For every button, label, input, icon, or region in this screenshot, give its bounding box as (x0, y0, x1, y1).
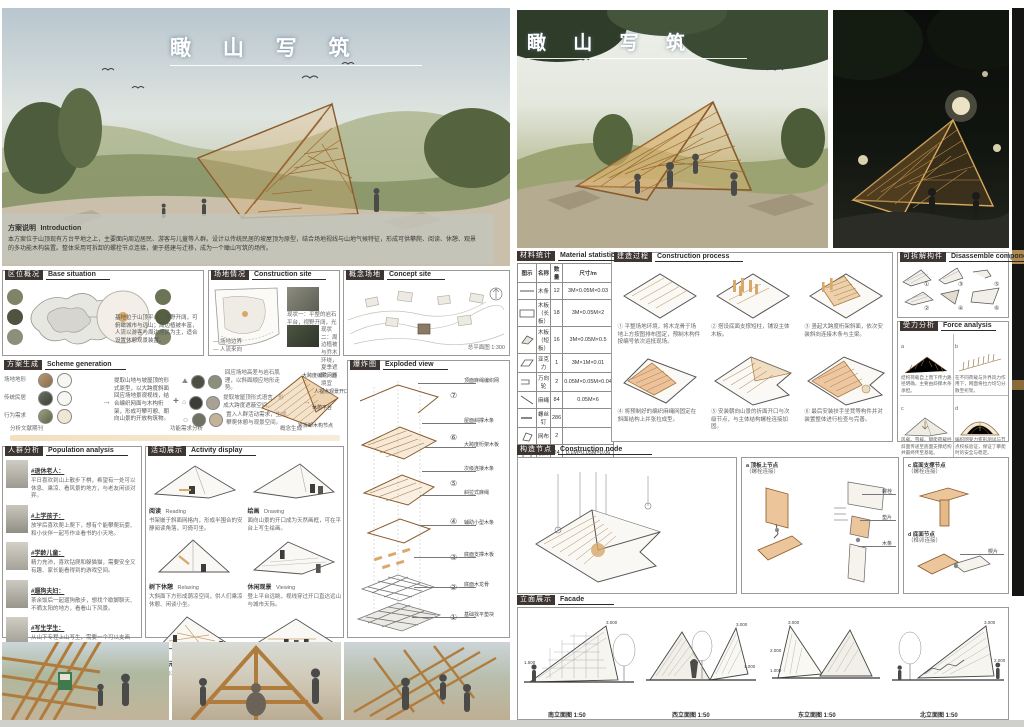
process-caption: ④ 将预制好的编织麻绳网固定在斜面结构上并张拉成型。 (618, 409, 702, 424)
scheme-arrow-1: → (102, 396, 111, 406)
node-detail-cd-box: c 底面支撑节点 （螺栓连接） d 底面节点 （榫卯连接） (903, 457, 1009, 594)
components-badge: 可拆解构件 (900, 252, 946, 262)
scheme-pair-1-b (208, 375, 222, 389)
mat-col-size: 尺寸/m (563, 264, 614, 283)
components-title: Disassemble components (949, 253, 1024, 262)
process-step: ⑥ 最后安装扶手坐凳等构件并对装置整体进行检查与完善。 (803, 351, 890, 432)
node-part-label-2: 垫片 (882, 514, 892, 521)
concept-plan-graphic (346, 284, 508, 348)
process-caption: ③ 竖起大跨度桁架斜面，依次安装斜向连接木条与主梁。 (804, 324, 888, 339)
population-group: #上学孩子： 放学后喜欢爬上爬下，想有个能攀爬玩耍、和小伙伴一起写作业看书的小天… (6, 505, 140, 538)
night-scene-graphic (833, 10, 1009, 248)
node-title: Construction node (558, 446, 652, 455)
exploded-label-3: 大跨度桁架木板 (464, 441, 499, 448)
base-situation-title: Base situation (46, 271, 110, 280)
mat-col-shape: 图示 (518, 264, 537, 283)
activity-note: 面向山景的开口成为天然画框，可在平台上写生绘画。 (248, 518, 343, 533)
elevation-north-graphic: 3.000 2.000 (890, 612, 1006, 700)
material-row: 木条123M×0.05M×0.03 (518, 283, 614, 300)
persona-desc: 平日喜欢到山上散步下棋，希望有一处可以休息、乘凉、看风景的地方，与老友闲谈对弈。 (31, 478, 137, 501)
process-caption: ⑥ 最后安装扶手坐凳等构件并对装置整体进行检查与完善。 (804, 409, 888, 424)
process-step: ① 平整场地环境，将木龙骨于场地上方按图排布固定，预制木构件按编号依次运抵现场。 (616, 266, 703, 347)
svg-text:1.000: 1.000 (770, 668, 782, 673)
material-badge: 材料统计 (517, 251, 555, 261)
scheme-input-1: 场地地形 (4, 377, 34, 385)
svg-text:3.000: 3.000 (736, 622, 748, 627)
scheme-plus: + (173, 396, 179, 407)
mat-col-name: 名称 (537, 264, 551, 283)
node-part-label-5: 楔片 (988, 548, 998, 555)
force-cell-b: b 在不同荷载与外界风力作用下，网面将拉力均匀分散至桁架。 (954, 334, 1008, 396)
construction-process-box: 建造过程 Construction process ① 平整场地环境，将木龙骨于… (611, 252, 893, 442)
exploded-num-7: ⑦ (450, 391, 457, 400)
construction-site-box: 场地情况 Construction site — 场地边界 — 人流来向 现状一… (208, 270, 340, 356)
component-num-3: ③ (958, 281, 963, 288)
material-row: 木板（短板）163M×0.05M×0.5 (518, 327, 614, 354)
force-tag: b (955, 344, 958, 350)
scheme-generation-section: 方案生成 Scheme generation 场地地形 传统民居 行为需求 (2, 360, 343, 446)
exploded-badge: 爆炸图 (350, 360, 380, 370)
site-legend-1: — 场地边界 (213, 339, 242, 347)
force-caption: 结构荷载自上而下传力路径明确，主要由斜撑木条承担。 (901, 375, 952, 394)
node-detail-d-sub: （榫卯连接） (908, 538, 941, 546)
activity-zh: 绘画 (248, 509, 260, 515)
scheme-input-3: 行为需求 (4, 413, 34, 421)
node-detail-c-tag: c 底面支撑节点 (908, 461, 946, 469)
force-tag: d (955, 406, 958, 412)
scheme-pair-2-a (189, 396, 203, 410)
force-tag: c (901, 406, 904, 412)
material-statistics-box: 材料统计 Material statistics 图示 名称 数量 尺寸/m 木… (517, 252, 607, 442)
board-left: 瞰 山 写 筑 方案说明 Introduction 本方案位于山顶现有方台平地之… (2, 8, 510, 720)
svg-text:2.000: 2.000 (770, 648, 782, 653)
poster-title-right: 瞰 山 写 筑 (527, 28, 747, 55)
exploded-label-5: 斜拉式麻绳 (464, 489, 489, 496)
activity-zh: 休闲观景 (248, 585, 272, 591)
activity-display-box: 活动展示 Activity display 阅读 Reading 书架嵌于斜面网… (145, 446, 344, 638)
material-table: 图示 名称 数量 尺寸/m 木条123M×0.05M×0.03 木板（长板）18… (517, 263, 614, 462)
material-row: 网布2 (518, 428, 614, 445)
base-situation-note: 基地位于山顶平台，视野开阔，可俯瞰城市与远山；周边植被丰富，人流以游客与周边居民… (115, 315, 199, 346)
node-key-axon (528, 466, 668, 588)
svg-text:1.500: 1.500 (524, 660, 536, 665)
persona-name: #上学孩子： (31, 514, 64, 520)
component-num-1: ① (924, 281, 929, 288)
facade-section: 立面展示 Facade 3.000 1.500 南立面图 1:50 (517, 596, 1009, 722)
persona-name: #退休老人： (31, 469, 64, 475)
activity-note: 书架嵌于斜面网格内，形成半围合的安静阅读角落，可倚可坐。 (149, 518, 244, 533)
persona-sketch (6, 580, 28, 608)
component-num-2: ② (924, 305, 929, 312)
force-analysis-box: 受力分析 Force analysis a 结构荷载自上而下传力路径明确，主要由… (897, 321, 1009, 442)
svg-text:3.000: 3.000 (606, 620, 618, 625)
svg-text:1.000: 1.000 (744, 664, 756, 669)
force-cell-a: a 结构荷载自上而下传力路径明确，主要由斜撑木条承担。 (900, 334, 954, 396)
concept-site-badge: 概念场地 (346, 270, 384, 280)
activity-en: Drawing (264, 509, 284, 515)
material-row: 亚克力13M×1M×0.01 (518, 354, 614, 373)
competition-poster: 瞰 山 写 筑 方案说明 Introduction 本方案位于山顶现有方台平地之… (0, 0, 1024, 727)
elevation-west-graphic: 3.000 1.000 (644, 612, 760, 700)
facade-title: Facade (558, 596, 614, 605)
persona-name: #遛狗夫妇： (31, 589, 64, 595)
people-icon: ☺ (182, 417, 189, 424)
node-detail-d-tag: d 底面节点 (908, 530, 941, 538)
node-detail-a-sub: （螺栓连接） (746, 469, 779, 477)
result-label-3: 休憩平台 (312, 404, 332, 411)
board-right: 瞰 山 写 筑 (517, 8, 1009, 722)
persona-sketch (6, 505, 28, 533)
activity-item: 绘画 Drawing 面向山景的开口成为天然画框，可在平台上写生绘画。 (248, 460, 343, 533)
exploded-label-2: 屋面斜撑木条 (464, 417, 494, 424)
roof-icon: ⌂ (182, 399, 186, 406)
concept-site-box: 概念场地 Concept site (343, 270, 510, 356)
activity-note: 登上平台远眺，视线穿过开口直达远山与城市天际。 (248, 594, 343, 609)
exploded-axon-graphic (354, 375, 444, 633)
hero-render-night (833, 10, 1009, 248)
photo-interior-kids (172, 642, 341, 720)
scheme-paragraph: 提取山地与坡屋顶的形式原型，以大跨度斜面回应场地景观视线，结合编织网面与木构桁架… (114, 378, 170, 424)
scheme-input-3-image (38, 409, 53, 424)
node-part-label-4: 木条 (882, 540, 892, 547)
disassemble-components-box: 可拆解构件 Disassemble components ① ③ ⑤ ② ④ ⑥ (897, 252, 1009, 318)
force-tag: a (901, 344, 904, 350)
force-badge: 受力分析 (900, 321, 938, 331)
node-detail-d-graphic (914, 546, 994, 590)
component-num-5: ⑤ (994, 281, 999, 288)
population-group: #遛狗夫妇： 茶余饭后一起遛狗散步，想找个歇脚聊天、不晒太阳的地方，看看山下风景… (6, 580, 140, 613)
node-badge: 构造节点 (517, 445, 555, 455)
page-bottom-strip (0, 720, 1024, 727)
population-group: #学龄儿童： 精力充沛，喜欢钻爬和躲猫猫，需要安全又有趣、家长能看得到的游戏空间… (6, 542, 140, 575)
result-label-4: 可拆卸木构节点 (298, 422, 333, 429)
node-detail-c-sub: （螺栓连接） (908, 469, 946, 477)
construction-site-badge: 场地情况 (211, 270, 249, 280)
process-caption: ① 平整场地环境，将木龙骨于场地上方按图排布固定，预制木构件按编号依次运抵现场。 (618, 324, 702, 347)
activity-title: Activity display (189, 447, 256, 456)
intro-text: 本方案位于山顶现有方台平地之上，主要面向周边居民、游客与儿童等人群。设计以传统民… (8, 236, 478, 253)
elevation-south-graphic: 3.000 1.500 (522, 612, 638, 700)
activity-item: 阅读 Reading 书架嵌于斜面网格内，形成半围合的安静阅读角落，可倚可坐。 (149, 460, 244, 533)
scheme-generation-title: Scheme generation (45, 361, 126, 370)
svg-text:3.000: 3.000 (984, 620, 996, 625)
construction-site-title: Construction site (252, 271, 326, 280)
persona-name: #写生学生： (31, 626, 64, 632)
base-situation-badge: 区位概况 (5, 270, 43, 280)
persona-desc: 茶余饭后一起遛狗散步，想找个歇脚聊天、不晒太阳的地方，看看山下风景。 (31, 598, 137, 613)
process-step: ⑤ 安装朝向山景的折面开口与次级节点，与主体结构螺栓连接加固。 (709, 351, 796, 432)
scheme-input-1-sketch (57, 373, 72, 388)
material-row: 万向轮20.05M×0.05M×0.04 (518, 373, 614, 392)
persona-sketch (6, 460, 28, 488)
exploded-view-box: 爆炸图 Exploded view (347, 360, 510, 638)
facade-badge: 立面展示 (517, 595, 555, 605)
exploded-label-4: 次级连接木条 (464, 465, 494, 472)
node-key-box (517, 457, 737, 594)
node-detail-a-graphic (748, 484, 812, 588)
scheme-generation-badge: 方案生成 (4, 360, 42, 370)
svg-text:2.000: 2.000 (994, 658, 1006, 663)
exploded-label-7: 底面支撑木板 (464, 551, 494, 558)
material-row: 木板（长板）183M×0.05M×2 (518, 300, 614, 327)
mat-col-qty: 数量 (551, 264, 563, 283)
node-detail-a-tag: a 顶板上节点 (746, 461, 779, 469)
timeline-bar (10, 435, 340, 441)
activity-en: Reading (165, 509, 186, 515)
site-photo-2 (287, 325, 319, 347)
population-analysis-box: 人群分析 Population analysis #退休老人： 平日喜欢到山上散… (2, 446, 142, 638)
scheme-input-2-sketch (57, 391, 72, 406)
force-title: Force analysis (941, 322, 996, 331)
intro-en: Introduction (40, 225, 81, 232)
construction-node-section: 构造节点 Construction node (517, 446, 1009, 594)
scheme-pair-2-b (206, 396, 220, 410)
process-badge: 建造过程 (614, 252, 652, 262)
mountain-icon: ⛰ (182, 378, 188, 386)
exploded-label-6: 辅助小型木条 (464, 519, 494, 526)
exploded-label-1: 顶面麻绳编织网 (464, 377, 499, 384)
process-step: ② 搭设底面支撑短柱，铺设主体木板。 (709, 266, 796, 347)
exploded-num-6: ⑥ (450, 433, 457, 442)
material-row: 麻绳840.05M×6 (518, 392, 614, 409)
activity-item: 休闲观景 Viewing 登上平台远眺，视线穿过开口直达远山与城市天际。 (248, 536, 343, 609)
population-badge: 人群分析 (5, 446, 43, 456)
hero-render-day-2: 瞰 山 写 筑 (517, 10, 828, 248)
scheme-input-3-sketch (57, 409, 72, 424)
poster-title-left: 瞰 山 写 筑 (170, 32, 422, 62)
material-row: 螺丝钉286 (518, 409, 614, 428)
site-photo-1 (287, 287, 319, 311)
component-num-6: ⑥ (994, 305, 999, 312)
activity-en: Relaxing (177, 585, 198, 591)
result-label-2: 人视点观景开口 (314, 388, 349, 395)
process-title: Construction process (655, 253, 743, 262)
exploded-num-5: ⑤ (450, 479, 457, 488)
exploded-title: Exploded view (383, 361, 448, 370)
activity-item: 树下休憩 Relaxing 大斜面下方形成荫凉空间，供人们乘凉休憩、闲谈小坐。 (149, 536, 244, 609)
node-detail-ab-box: a 顶板上节点 （螺栓连接） (741, 457, 899, 594)
node-part-label-1: 螺栓 (882, 488, 892, 495)
photo-climbing-net (344, 642, 510, 720)
process-caption: ⑤ 安装朝向山景的折面开口与次级节点，与主体结构螺栓连接加固。 (711, 409, 795, 432)
concept-site-title: Concept site (387, 271, 445, 280)
population-group: #退休老人： 平日喜欢到山上散步下棋，希望有一处可以休息、乘凉、看风景的地方，与… (6, 460, 140, 501)
persona-sketch (6, 617, 28, 645)
exploded-label-9: 基础找平垫块 (464, 611, 494, 618)
persona-desc: 精力充沛，喜欢钻爬和躲猫猫，需要安全又有趣、家长能看得到的游戏空间。 (31, 560, 137, 575)
activity-en: Viewing (276, 585, 295, 591)
scheme-input-2: 传统民居 (4, 395, 34, 403)
node-detail-b-graphic (822, 480, 892, 590)
process-step: ④ 将预制好的编织麻绳网固定在斜面结构上并张拉成型。 (616, 351, 703, 432)
population-title: Population analysis (46, 447, 128, 456)
timeline-label-1: 分析文献期刊 (10, 426, 43, 434)
activity-badge: 活动展示 (148, 446, 186, 456)
activity-zh: 阅读 (149, 509, 161, 515)
persona-sketch (6, 542, 28, 570)
activity-note: 大斜面下方形成荫凉空间，供人们乘凉休憩、闲谈小坐。 (149, 594, 244, 609)
force-caption: 在不同荷载与外界风力作用下，网面将拉力均匀分散至桁架。 (955, 375, 1007, 394)
persona-desc: 放学后喜欢爬上爬下，想有个能攀爬玩耍、和小伙伴一起写作业看书的小天地。 (31, 523, 137, 538)
scheme-pair-3-b (209, 413, 223, 427)
photo-bookshelf-wall (2, 642, 169, 720)
activity-zh: 树下休憩 (149, 585, 173, 591)
scheme-input-2-image (38, 391, 53, 406)
elevation-east-graphic: 3.000 2.000 1.000 (768, 612, 884, 700)
title-underline-2 (527, 58, 747, 59)
title-underline (170, 65, 422, 66)
components-graphic (901, 266, 1007, 306)
node-detail-c-graphic (914, 482, 974, 528)
svg-text:3.000: 3.000 (788, 620, 800, 625)
timeline-label-3: 概念生成 (280, 426, 302, 434)
timeline-label-2: 功能需求分析 (170, 426, 203, 434)
site-legend-2: — 人流来向 (213, 347, 242, 355)
scheme-input-1-image (38, 373, 53, 388)
concept-scale-label: 总平面图 1:300 (468, 345, 505, 353)
process-caption: ② 搭设底面支撑短柱，铺设主体木板。 (711, 324, 795, 339)
component-num-4: ④ (958, 305, 963, 312)
intro-band: 方案说明 Introduction 本方案位于山顶现有方台平地之上，主要面向周边… (2, 214, 494, 264)
persona-name: #学龄儿童： (31, 551, 64, 557)
exploded-label-8: 底面木龙骨 (464, 581, 489, 588)
result-label-1: 大跨度编织网面 (302, 372, 337, 379)
adjacent-panel-sliver (1012, 8, 1024, 596)
scheme-pair-1-a (191, 375, 205, 389)
base-situation-box: 区位概况 Base situation 基地位于山顶平台，视野开阔，可俯瞰城市与… (2, 270, 204, 356)
hero-render-day: 瞰 山 写 筑 方案说明 Introduction 本方案位于山顶现有方台平地之… (2, 8, 510, 266)
process-step: ③ 竖起大跨度桁架斜面，依次安装斜向连接木条与主梁。 (803, 266, 890, 347)
intro-zh: 方案说明 (8, 225, 36, 232)
